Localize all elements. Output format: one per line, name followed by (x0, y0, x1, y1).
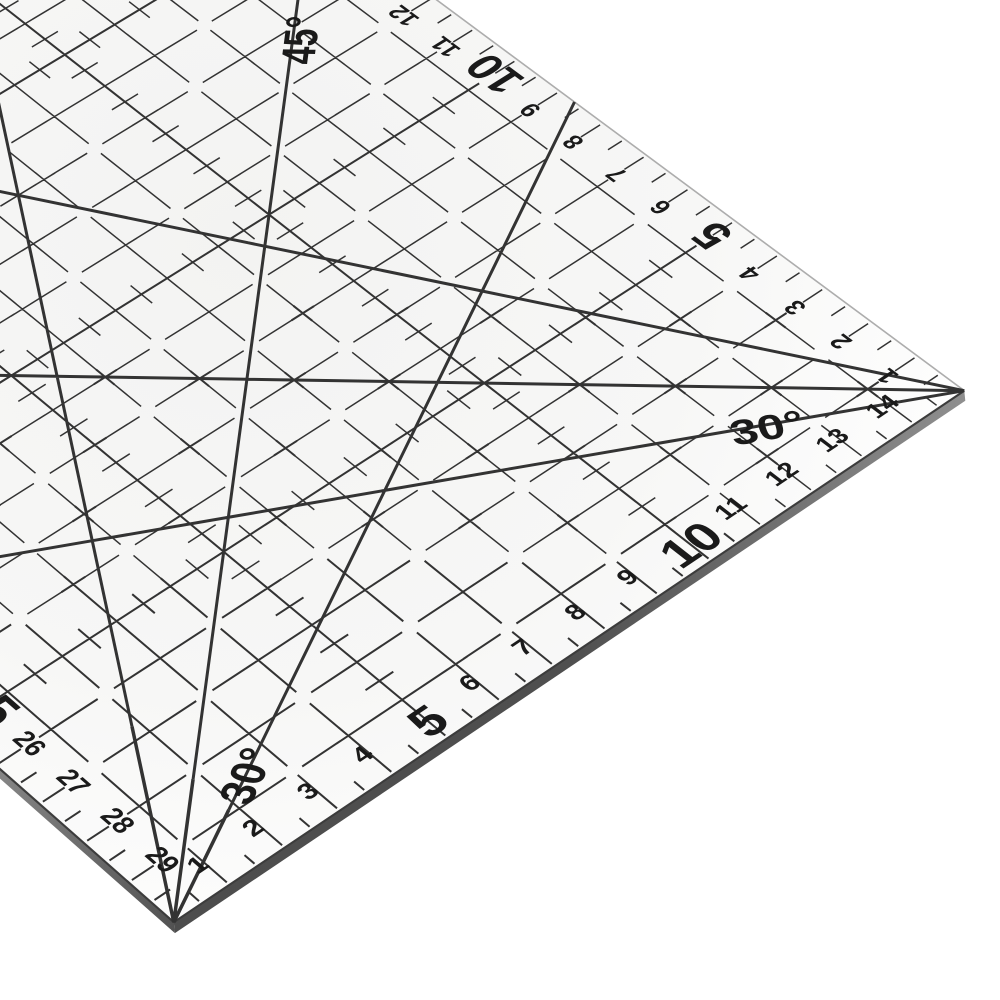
svg-text:45°: 45° (270, 15, 330, 64)
